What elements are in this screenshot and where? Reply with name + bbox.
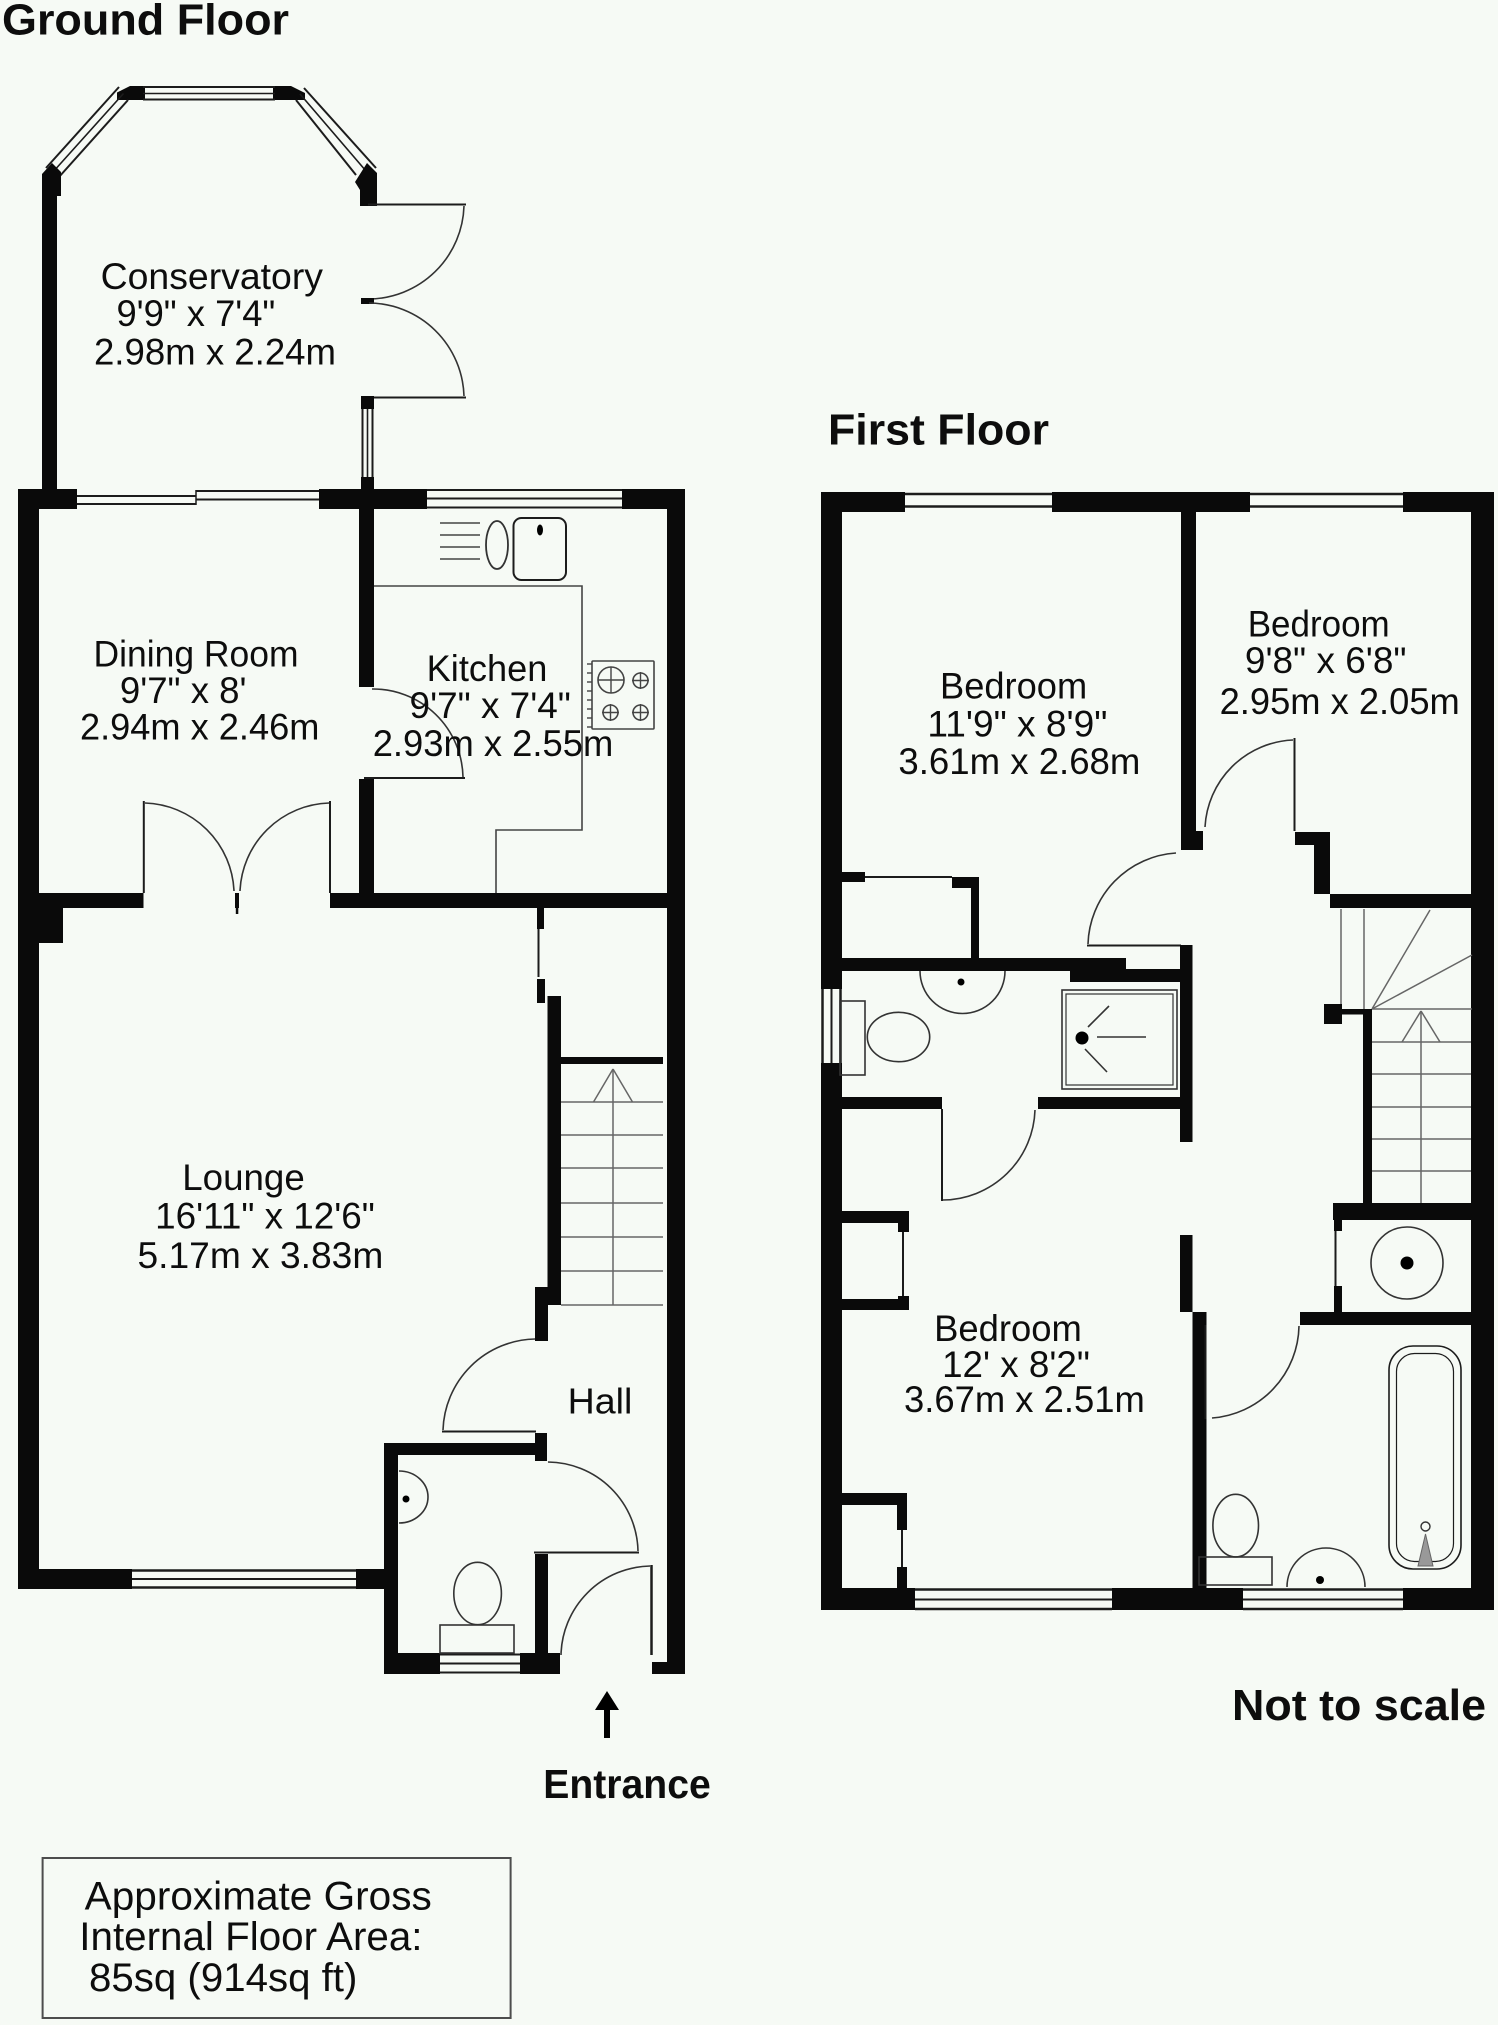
svg-text:Hall: Hall [568, 1380, 633, 1421]
svg-text:Ground Floor: Ground Floor [2, 0, 289, 45]
svg-text:2.94m x 2.46m: 2.94m x 2.46m [80, 706, 320, 748]
svg-text:2.98m x 2.24m: 2.98m x 2.24m [94, 331, 336, 373]
svg-text:Not to scale: Not to scale [1232, 1681, 1486, 1730]
svg-text:9'9" x 7'4": 9'9" x 7'4" [116, 292, 275, 334]
svg-text:2.95m x 2.05m: 2.95m x 2.05m [1220, 680, 1460, 722]
svg-text:First Floor: First Floor [828, 406, 1049, 455]
svg-text:Kitchen: Kitchen [427, 647, 548, 689]
svg-text:3.61m x 2.68m: 3.61m x 2.68m [898, 740, 1140, 782]
svg-text:Lounge: Lounge [182, 1156, 305, 1198]
svg-text:3.67m x 2.51m: 3.67m x 2.51m [904, 1378, 1145, 1420]
svg-text:Approximate Gross: Approximate Gross [85, 1875, 432, 1919]
svg-text:11'9" x 8'9": 11'9" x 8'9" [927, 703, 1107, 745]
svg-text:Entrance: Entrance [543, 1761, 711, 1807]
svg-text:9'8" x 6'8": 9'8" x 6'8" [1245, 639, 1407, 681]
svg-text:9'7" x 7'4": 9'7" x 7'4" [410, 684, 571, 726]
svg-text:16'11" x 12'6": 16'11" x 12'6" [155, 1195, 375, 1237]
svg-text:Bedroom: Bedroom [940, 665, 1087, 707]
svg-text:Internal Floor Area:: Internal Floor Area: [79, 1915, 422, 1959]
svg-text:5.17m x 3.83m: 5.17m x 3.83m [138, 1234, 384, 1276]
svg-text:2.93m x 2.55m: 2.93m x 2.55m [373, 722, 614, 764]
svg-text:Conservatory: Conservatory [101, 255, 324, 297]
svg-text:85sq (914sq ft): 85sq (914sq ft) [89, 1956, 357, 2000]
